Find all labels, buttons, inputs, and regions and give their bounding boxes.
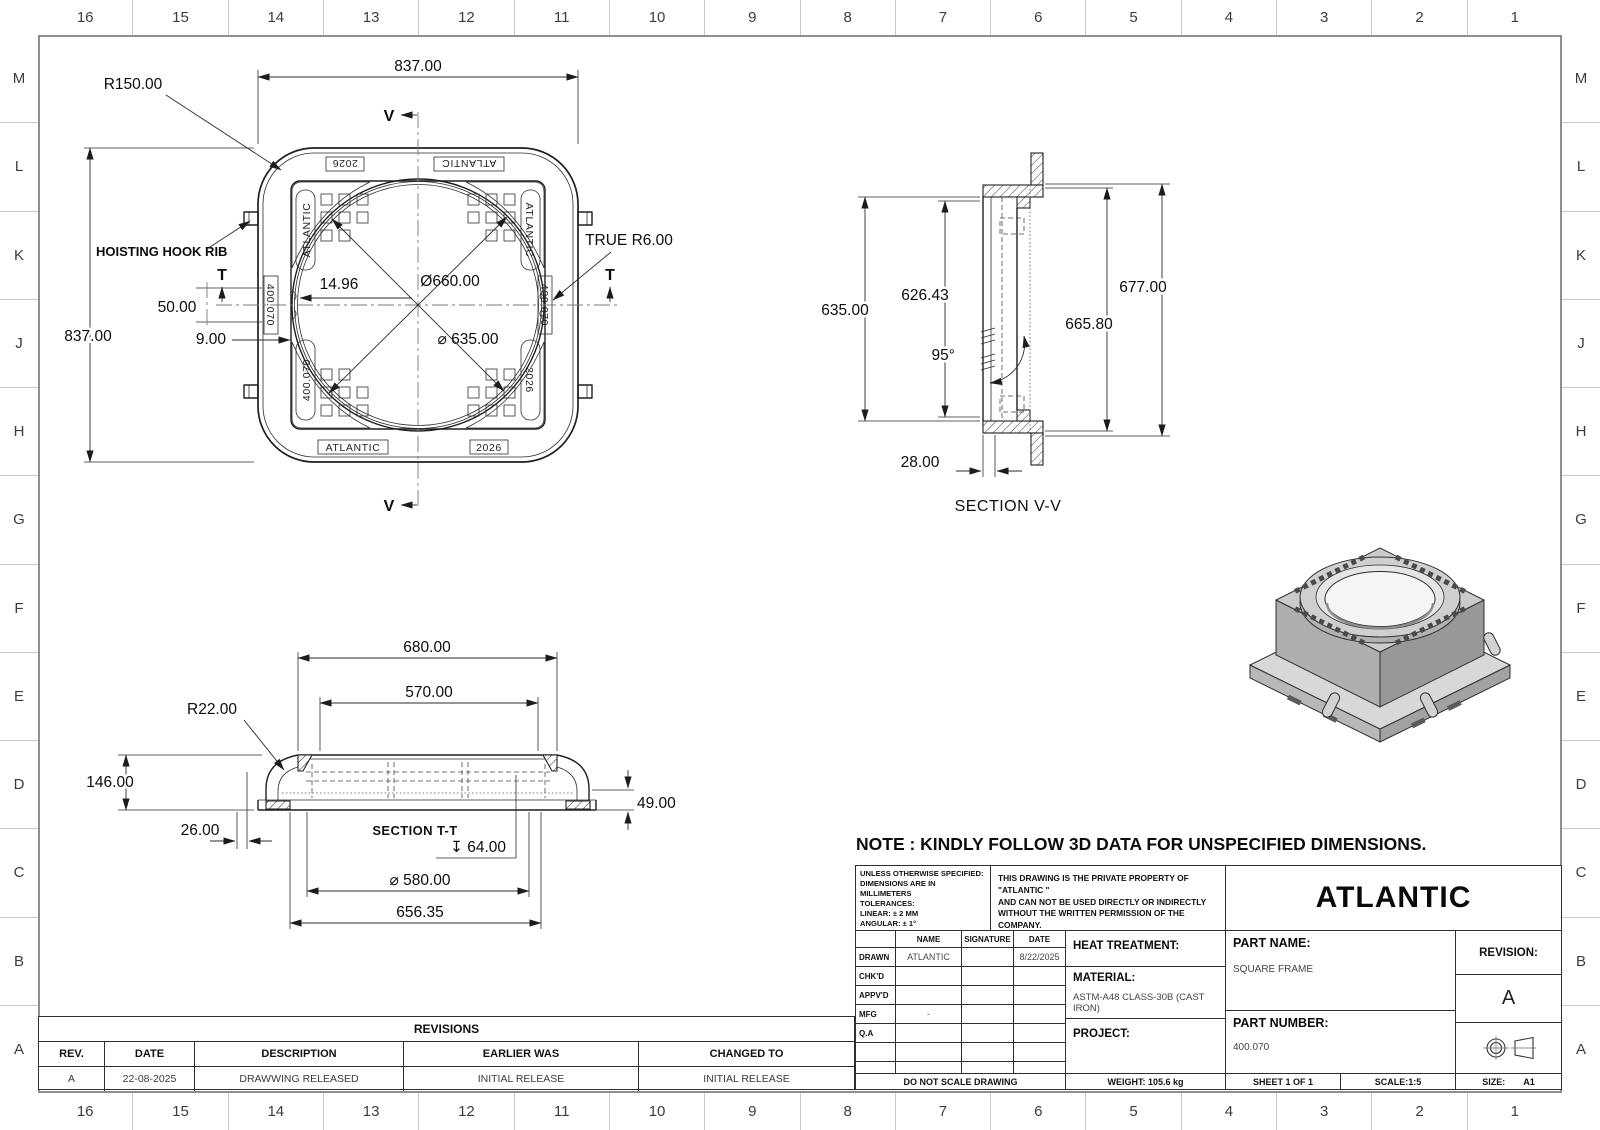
signoff-date xyxy=(1014,1043,1065,1061)
signoff-name xyxy=(896,1024,962,1042)
signoff-signature xyxy=(962,986,1014,1004)
signoff-date xyxy=(1014,967,1065,985)
engraved-texts: ATLANTIC ATLANTIC 400.070 2026 2026 ATLA… xyxy=(264,157,552,454)
signoff-name xyxy=(896,1062,962,1073)
signoff-name: ATLANTIC xyxy=(896,948,962,966)
signoff-name: - xyxy=(896,1005,962,1023)
signoff-date xyxy=(1014,1024,1065,1042)
svg-text:2026: 2026 xyxy=(523,367,535,393)
tolerance-notes: UNLESS OTHERWISE SPECIFIED:DIMENSIONS AR… xyxy=(856,866,991,931)
revision-rev: A xyxy=(39,1067,105,1091)
revision-column: REVISION: A xyxy=(1456,931,1561,1073)
signoff-header-cell: DATE xyxy=(1014,931,1065,947)
signoff-signature xyxy=(962,1024,1014,1042)
title-block: UNLESS OTHERWISE SPECIFIED:DIMENSIONS AR… xyxy=(855,865,1562,1090)
size-value: A1 xyxy=(1523,1077,1535,1087)
revisions-rows: A 22-08-2025 DRAWWING RELEASED INITIAL R… xyxy=(39,1067,854,1091)
signoff-row xyxy=(856,1043,1065,1062)
signoff-role: MFG xyxy=(856,1005,896,1023)
signoff-header: NAMESIGNATUREDATE xyxy=(856,931,1065,948)
sheet-number: SHEET 1 OF 1 xyxy=(1226,1073,1341,1089)
property-line: WITHOUT THE WRITTEN PERMISSION OF THE CO… xyxy=(998,908,1218,931)
revisions-header-cell: EARLIER WAS xyxy=(404,1042,639,1066)
revision-date: 22-08-2025 xyxy=(105,1067,195,1091)
size-cell: SIZE: A1 xyxy=(1456,1073,1561,1089)
signoff-row: MFG - xyxy=(856,1005,1065,1024)
part-number-label: PART NUMBER: xyxy=(1233,1016,1448,1030)
size-label: SIZE: xyxy=(1482,1077,1505,1087)
part-name-label: PART NAME: xyxy=(1233,936,1448,950)
revisions-header-cell: DESCRIPTION xyxy=(195,1042,404,1066)
material-value: ASTM-A48 CLASS-30B (CAST IRON) xyxy=(1073,992,1218,1014)
signoff-role: CHK'D xyxy=(856,967,896,985)
svg-text:TRUE R6.00: TRUE R6.00 xyxy=(585,232,673,249)
svg-text:146.00: 146.00 xyxy=(86,774,134,791)
svg-text:ATLANTIC: ATLANTIC xyxy=(442,157,497,169)
svg-text:9.00: 9.00 xyxy=(196,331,227,348)
drawing-sheet: 16151413121110987654321 1615141312111098… xyxy=(0,0,1600,1130)
svg-text:ATLANTIC: ATLANTIC xyxy=(301,203,313,258)
tolerance-line: LINEAR: ± 2 MM xyxy=(860,909,986,919)
svg-text:SECTION V-V: SECTION V-V xyxy=(955,498,1062,515)
revision-earlier-was: INITIAL RELEASE xyxy=(404,1067,639,1091)
svg-text:570.00: 570.00 xyxy=(405,684,453,701)
svg-text:Ø660.00: Ø660.00 xyxy=(420,273,480,290)
signoff-row: APPV'D xyxy=(856,986,1065,1005)
project-label: PROJECT: xyxy=(1073,1028,1130,1040)
weight: WEIGHT: 105.6 kg xyxy=(1066,1073,1226,1089)
svg-text:400.070: 400.070 xyxy=(301,359,313,401)
company-logo: ATLANTIC xyxy=(1226,866,1561,931)
revisions-table: REVISIONS REV.DATEDESCRIPTIONEARLIER WAS… xyxy=(38,1016,855,1090)
signoff-signature xyxy=(962,1005,1014,1023)
svg-text:2026: 2026 xyxy=(476,442,502,454)
signoff-date xyxy=(1014,1062,1065,1073)
signoff-row xyxy=(856,1062,1065,1073)
tolerance-line: DIMENSIONS ARE IN MILLIMETERS xyxy=(860,879,986,899)
signoff-header-cell: SIGNATURE xyxy=(962,931,1014,947)
revision-changed-to: INITIAL RELEASE xyxy=(639,1067,854,1091)
svg-text:28.00: 28.00 xyxy=(901,454,940,471)
heat-treatment-label: HEAT TREATMENT: xyxy=(1073,940,1179,952)
signoff-signature xyxy=(962,1043,1014,1061)
signoff-role: Q.A xyxy=(856,1024,896,1042)
section-vv-view: 635.00 626.43 665.80 677.00 95° 28.00 SE… xyxy=(821,153,1170,515)
svg-text:680.00: 680.00 xyxy=(403,639,451,656)
svg-text:ATLANTIC: ATLANTIC xyxy=(523,203,535,258)
property-line: THIS DRAWING IS THE PRIVATE PROPERTY OF … xyxy=(998,873,1218,897)
svg-text:635.00: 635.00 xyxy=(821,302,869,319)
svg-text:2026: 2026 xyxy=(332,157,358,169)
svg-text:ATLANTIC: ATLANTIC xyxy=(326,442,381,454)
property-notice: THIS DRAWING IS THE PRIVATE PROPERTY OF … xyxy=(991,866,1226,931)
tolerance-line: ANGULAR: ± 1° xyxy=(860,919,986,929)
svg-text:V: V xyxy=(384,498,395,515)
svg-text:837.00: 837.00 xyxy=(64,328,112,345)
revisions-header-cell: CHANGED TO xyxy=(639,1042,854,1066)
signoff-signature xyxy=(962,1062,1014,1073)
signoff-name xyxy=(896,986,962,1004)
signoff-table: NAMESIGNATUREDATE DRAWN ATLANTIC 8/22/20… xyxy=(856,931,1066,1073)
svg-text:50.00: 50.00 xyxy=(158,299,197,316)
projection-symbol-cell xyxy=(1456,1023,1561,1072)
revisions-header-row: REV.DATEDESCRIPTIONEARLIER WASCHANGED TO xyxy=(39,1042,854,1067)
signoff-date xyxy=(1014,986,1065,1004)
revision-label: REVISION: xyxy=(1456,931,1561,975)
revisions-row: A 22-08-2025 DRAWWING RELEASED INITIAL R… xyxy=(39,1067,854,1091)
svg-text:14.96: 14.96 xyxy=(320,276,359,293)
signoff-date: 8/22/2025 xyxy=(1014,948,1065,966)
signoff-signature xyxy=(962,967,1014,985)
section-tt-dimensions: 680.00 570.00 R22.00 146.00 26.00 49.00 … xyxy=(86,639,676,929)
signoff-row: CHK'D xyxy=(856,967,1065,986)
svg-text:SECTION T-T: SECTION T-T xyxy=(372,823,457,838)
signoff-name xyxy=(896,967,962,985)
svg-text:V: V xyxy=(384,108,395,125)
third-angle-projection-icon xyxy=(1481,1034,1537,1062)
signoff-name xyxy=(896,1043,962,1061)
revision-description: DRAWWING RELEASED xyxy=(195,1067,404,1091)
svg-text:26.00: 26.00 xyxy=(181,822,220,839)
svg-text:R150.00: R150.00 xyxy=(104,76,163,93)
property-line: AND CAN NOT BE USED DIRECTLY OR INDIRECT… xyxy=(998,897,1218,909)
part-number-value: 400.070 xyxy=(1233,1042,1448,1053)
signoff-role xyxy=(856,1043,896,1061)
scale: SCALE:1:5 xyxy=(1341,1073,1456,1089)
signoff-header-cell: NAME xyxy=(896,931,962,947)
signoff-row: Q.A xyxy=(856,1024,1065,1043)
signoff-role: APPV'D xyxy=(856,986,896,1004)
svg-text:677.00: 677.00 xyxy=(1119,279,1167,296)
svg-text:HOISTING HOOK RIB: HOISTING HOOK RIB xyxy=(96,244,227,259)
svg-text:656.35: 656.35 xyxy=(396,904,443,921)
svg-text:T: T xyxy=(217,267,227,284)
signoff-role: DRAWN xyxy=(856,948,896,966)
svg-text:T: T xyxy=(605,267,615,284)
revisions-header-cell: DATE xyxy=(105,1042,195,1066)
signoff-signature xyxy=(962,948,1014,966)
svg-text:665.80: 665.80 xyxy=(1065,316,1113,333)
drawing-note: NOTE : KINDLY FOLLOW 3D DATA FOR UNSPECI… xyxy=(856,834,1426,855)
signoff-role xyxy=(856,1062,896,1073)
part-column: PART NAME: SQUARE FRAME PART NUMBER: 400… xyxy=(1226,931,1456,1073)
part-name-value: SQUARE FRAME xyxy=(1233,964,1448,975)
signoff-rows: DRAWN ATLANTIC 8/22/2025 CHK'D APPV'D xyxy=(856,948,1065,1073)
process-column: HEAT TREATMENT: MATERIAL: ASTM-A48 CLASS… xyxy=(1066,931,1226,1073)
svg-text:95°: 95° xyxy=(932,347,955,364)
do-not-scale: DO NOT SCALE DRAWING xyxy=(856,1073,1066,1089)
svg-text:49.00: 49.00 xyxy=(637,795,676,812)
signoff-date xyxy=(1014,1005,1065,1023)
isometric-view xyxy=(1250,548,1510,742)
tolerance-line: UNLESS OTHERWISE SPECIFIED: xyxy=(860,869,986,879)
svg-text:⌀ 580.00: ⌀ 580.00 xyxy=(389,872,450,889)
svg-text:↧ 64.00: ↧ 64.00 xyxy=(450,839,506,856)
top-view: ATLANTIC ATLANTIC 400.070 2026 2026 ATLA… xyxy=(64,58,673,515)
signoff-header-cell xyxy=(856,931,896,947)
revisions-header-cell: REV. xyxy=(39,1042,105,1066)
revision-value: A xyxy=(1456,975,1561,1023)
svg-text:837.00: 837.00 xyxy=(394,58,442,75)
revisions-title: REVISIONS xyxy=(39,1017,854,1042)
material-label: MATERIAL: xyxy=(1073,972,1218,984)
svg-text:R22.00: R22.00 xyxy=(187,701,237,718)
tolerance-line: TOLERANCES: xyxy=(860,899,986,909)
svg-text:626.43: 626.43 xyxy=(901,287,948,304)
section-tt-view: 680.00 570.00 R22.00 146.00 26.00 49.00 … xyxy=(86,639,676,929)
signoff-row: DRAWN ATLANTIC 8/22/2025 xyxy=(856,948,1065,967)
